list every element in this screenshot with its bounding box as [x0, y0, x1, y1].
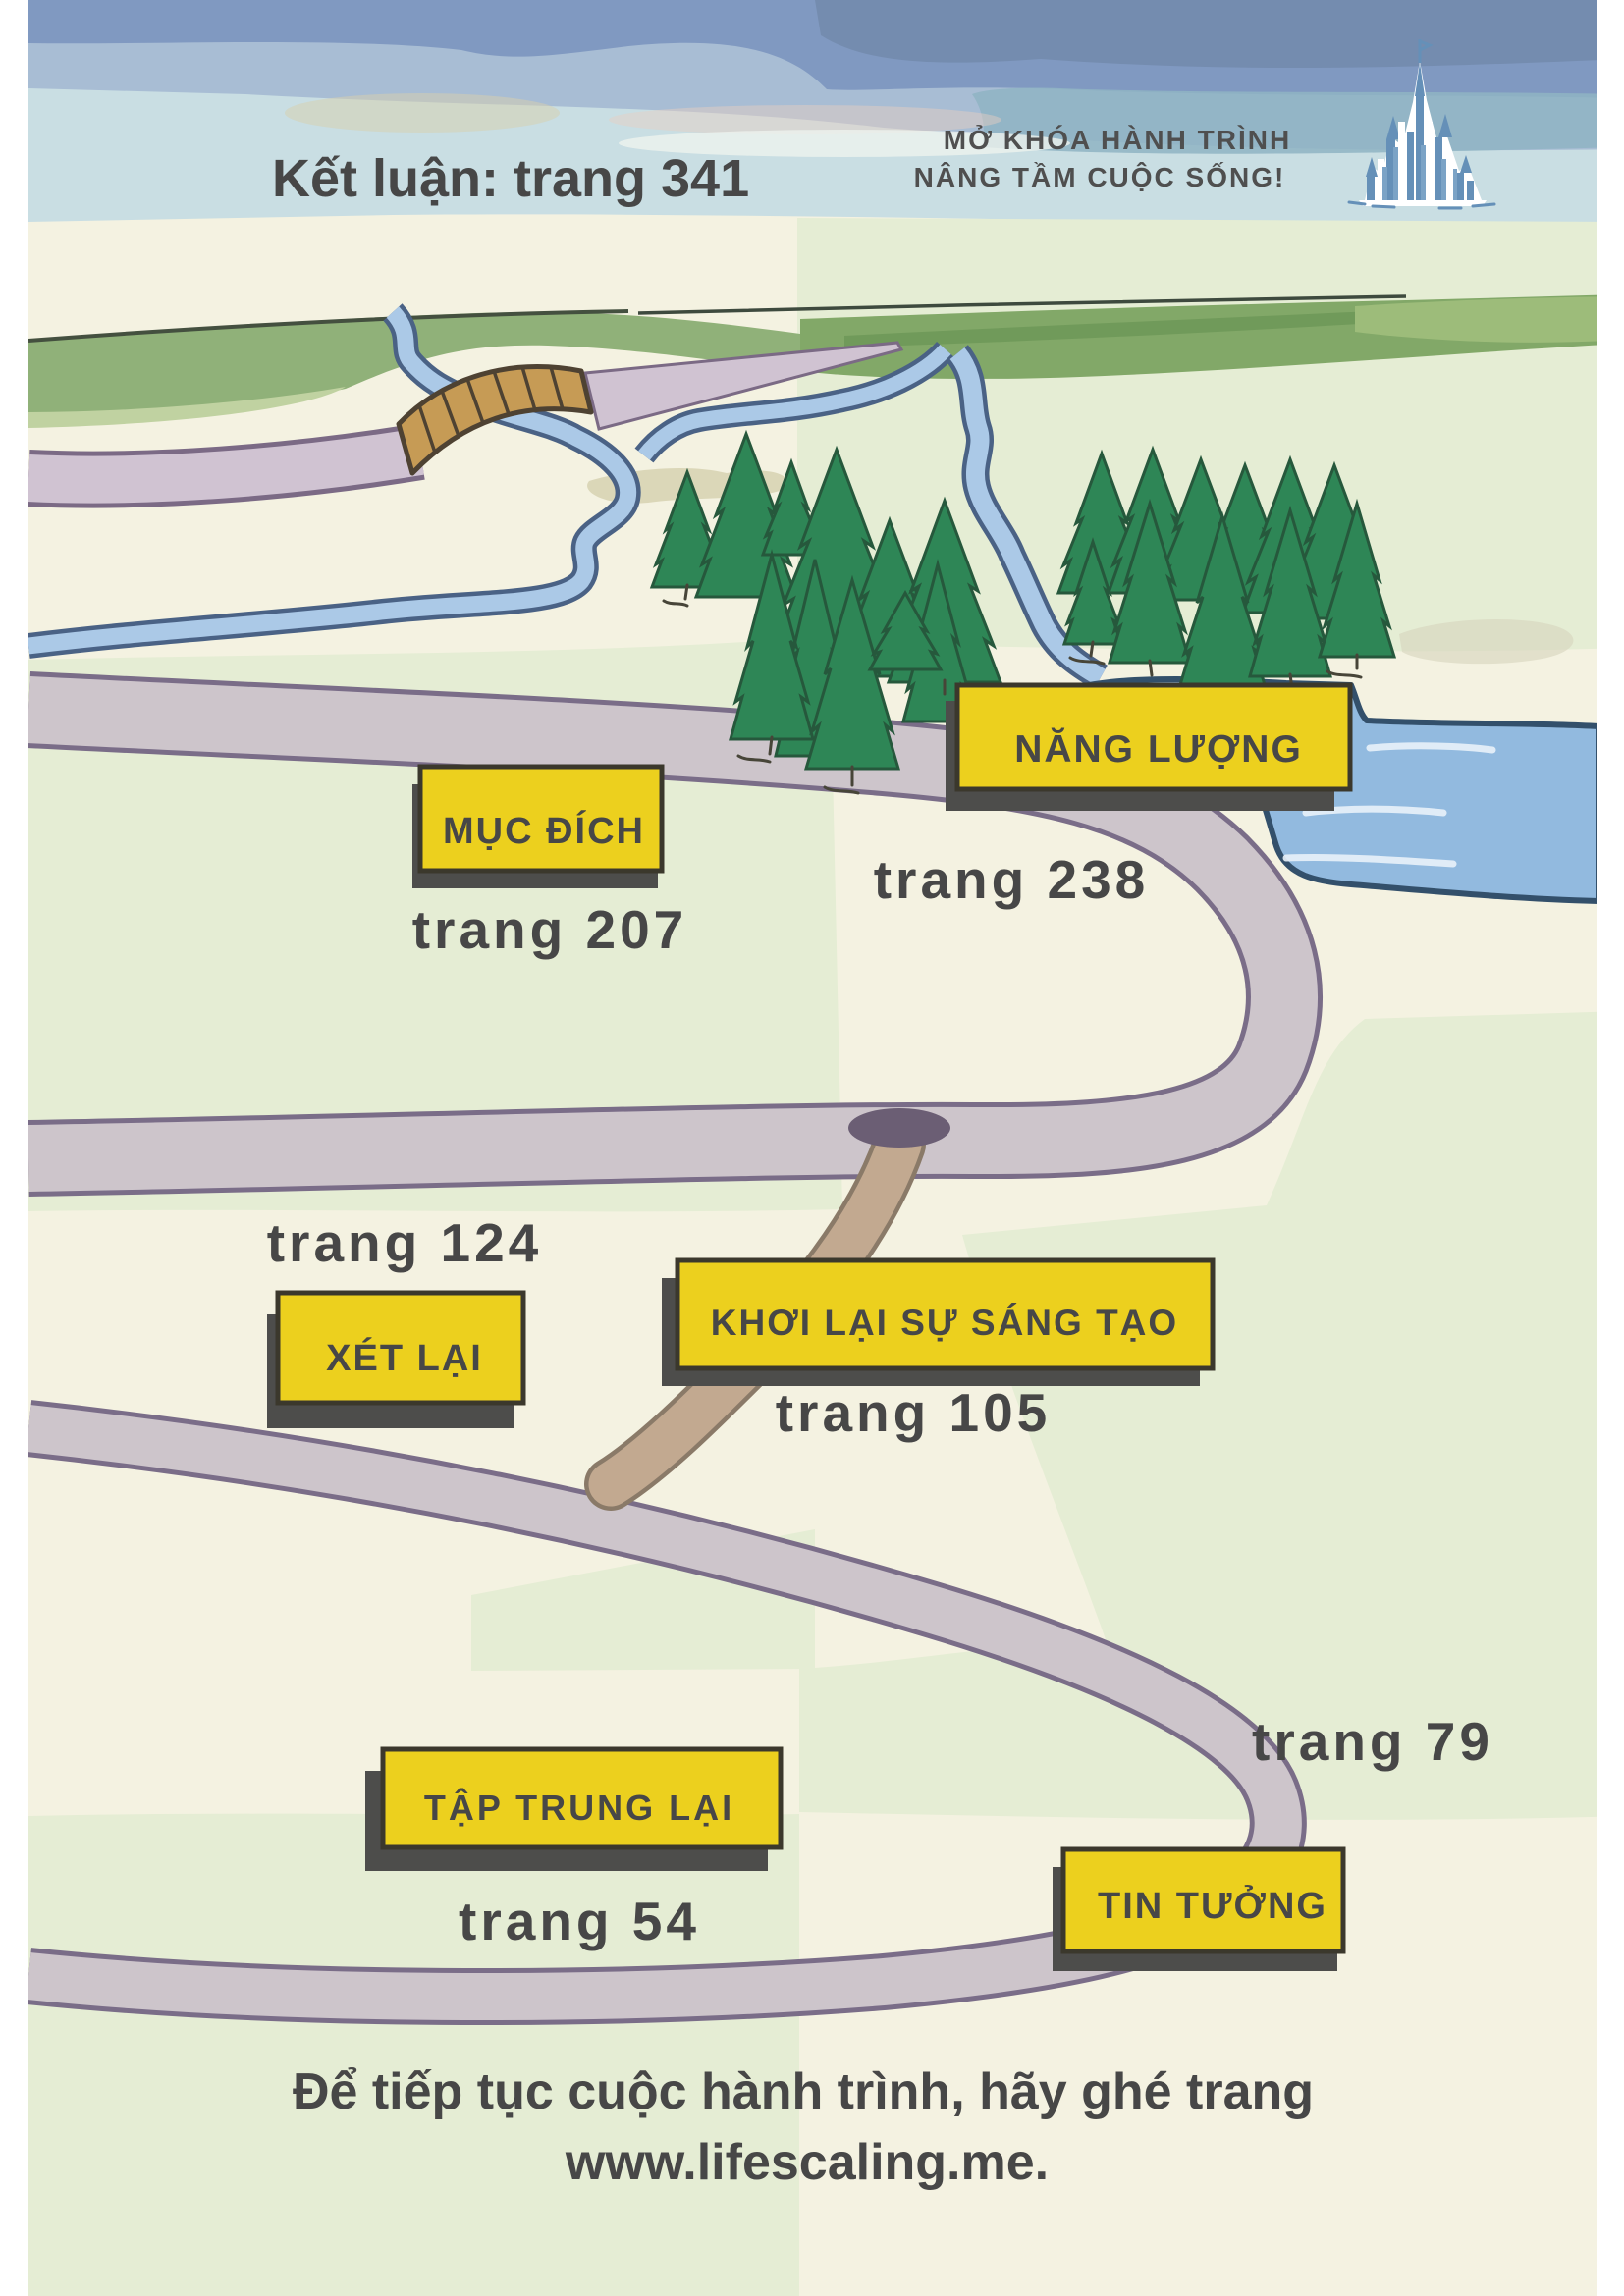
- svg-text:trang 238: trang 238: [874, 849, 1150, 910]
- svg-text:trang 79: trang 79: [1252, 1711, 1493, 1772]
- svg-text:MỞ KHÓA HÀNH TRÌNH: MỞ KHÓA HÀNH TRÌNH: [944, 124, 1291, 155]
- svg-text:trang 54: trang 54: [459, 1891, 700, 1951]
- svg-text:Để tiếp tục cuộc hành trình, h: Để tiếp tục cuộc hành trình, hãy ghé tra…: [293, 2063, 1314, 2120]
- svg-text:trang 105: trang 105: [776, 1382, 1052, 1443]
- svg-text:NÂNG TẦM CUỘC SỐNG!: NÂNG TẦM CUỘC SỐNG!: [914, 161, 1286, 192]
- svg-text:TẬP TRUNG LẠI: TẬP TRUNG LẠI: [424, 1787, 734, 1828]
- svg-text:MỤC ĐÍCH: MỤC ĐÍCH: [443, 809, 645, 852]
- svg-text:TIN TƯỞNG: TIN TƯỞNG: [1098, 1884, 1327, 1927]
- svg-text:XÉT LẠI: XÉT LẠI: [326, 1336, 483, 1379]
- svg-text:Kết luận: trang 341: Kết luận: trang 341: [272, 149, 749, 208]
- svg-text:trang 207: trang 207: [412, 899, 688, 960]
- svg-text:www.lifescaling.me.: www.lifescaling.me.: [565, 2134, 1049, 2191]
- svg-text:trang 124: trang 124: [267, 1212, 543, 1273]
- svg-text:KHƠI LẠI SỰ SÁNG TẠO: KHƠI LẠI SỰ SÁNG TẠO: [711, 1303, 1178, 1343]
- svg-text:NĂNG LƯỢNG: NĂNG LƯỢNG: [1014, 727, 1303, 771]
